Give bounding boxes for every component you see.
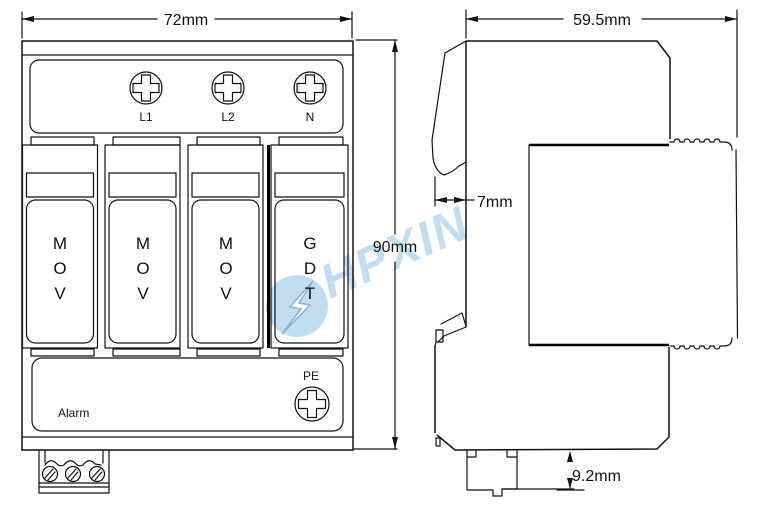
module-window <box>192 173 259 197</box>
alarm-panel <box>32 358 343 431</box>
terminal-screw-l1 <box>130 72 162 104</box>
module-letter: M <box>136 234 150 253</box>
module-bottom-tabs <box>31 349 343 356</box>
module-letter: M <box>219 234 233 253</box>
terminal-block-screw <box>43 467 58 482</box>
side-top-outline <box>466 41 670 139</box>
terminal-label-n: N <box>306 110 315 124</box>
terminal-label-l1: L1 <box>139 110 153 124</box>
pe-label: PE <box>303 369 319 383</box>
phillips-cross-icon <box>299 391 326 418</box>
side-rib-right-edge <box>736 150 738 338</box>
alarm-label: Alarm <box>58 406 89 420</box>
module-letter: O <box>136 259 149 278</box>
terminal-block-screw <box>90 467 105 482</box>
dim-side-flange-label: 7mm <box>477 194 513 211</box>
phillips-cross-icon <box>215 75 241 101</box>
module-letter: O <box>53 259 66 278</box>
dim-front-width: 72mm <box>22 12 352 38</box>
module-letter: O <box>219 259 232 278</box>
spd-dimension-drawing: HPXIN L1 L2 N <box>0 0 759 516</box>
module-letter: M <box>53 234 67 253</box>
dim-rail-depth: 9.2mm <box>557 451 621 490</box>
side-view <box>432 41 738 496</box>
phillips-cross-icon <box>133 75 159 101</box>
terminal-label-l2: L2 <box>221 110 235 124</box>
alarm-terminal-block <box>39 450 109 493</box>
din-clip-hook <box>436 438 440 446</box>
phillips-cross-icon <box>297 75 323 101</box>
din-clip-lever <box>435 313 466 346</box>
terminal-block-wavy-edge <box>45 461 101 466</box>
dim-front-height-label: 90mm <box>373 239 417 256</box>
module-letter: T <box>305 284 315 303</box>
dim-side-depth-label: 59.5mm <box>573 12 631 29</box>
terminal-block-screw <box>66 467 81 482</box>
module-window <box>275 173 344 197</box>
module-letter: V <box>54 284 66 303</box>
dim-rail-depth-label: 9.2mm <box>572 468 621 485</box>
module-window <box>27 173 94 197</box>
technical-drawing-page: HPXIN L1 L2 N <box>0 0 759 516</box>
module-window <box>109 173 176 197</box>
module-mov-1: M O V <box>23 145 98 348</box>
module-mov-3: M O V <box>188 145 263 348</box>
pe-screw <box>295 387 329 421</box>
module-letter: G <box>303 234 316 253</box>
module-letter: V <box>137 284 149 303</box>
module-mov-2: M O V <box>105 145 180 348</box>
module-letter: V <box>220 284 232 303</box>
module-letter: D <box>304 259 316 278</box>
dimensions: 72mm 90mm 59.5mm 7mm <box>22 10 737 490</box>
dim-front-width-label: 72mm <box>164 12 208 29</box>
side-front-flange <box>432 41 466 175</box>
front-view: L1 L2 N M O V M O V <box>22 41 353 493</box>
side-rib-top-edge <box>670 139 732 150</box>
terminal-screw-l2 <box>212 72 244 104</box>
module-top-tabs <box>31 137 343 145</box>
side-base-outline <box>435 346 669 450</box>
watermark: HPXIN <box>266 197 478 337</box>
dim-side-depth: 59.5mm <box>466 10 737 137</box>
side-rib-bottom-edge <box>670 338 732 349</box>
terminal-screw-n <box>294 72 326 104</box>
